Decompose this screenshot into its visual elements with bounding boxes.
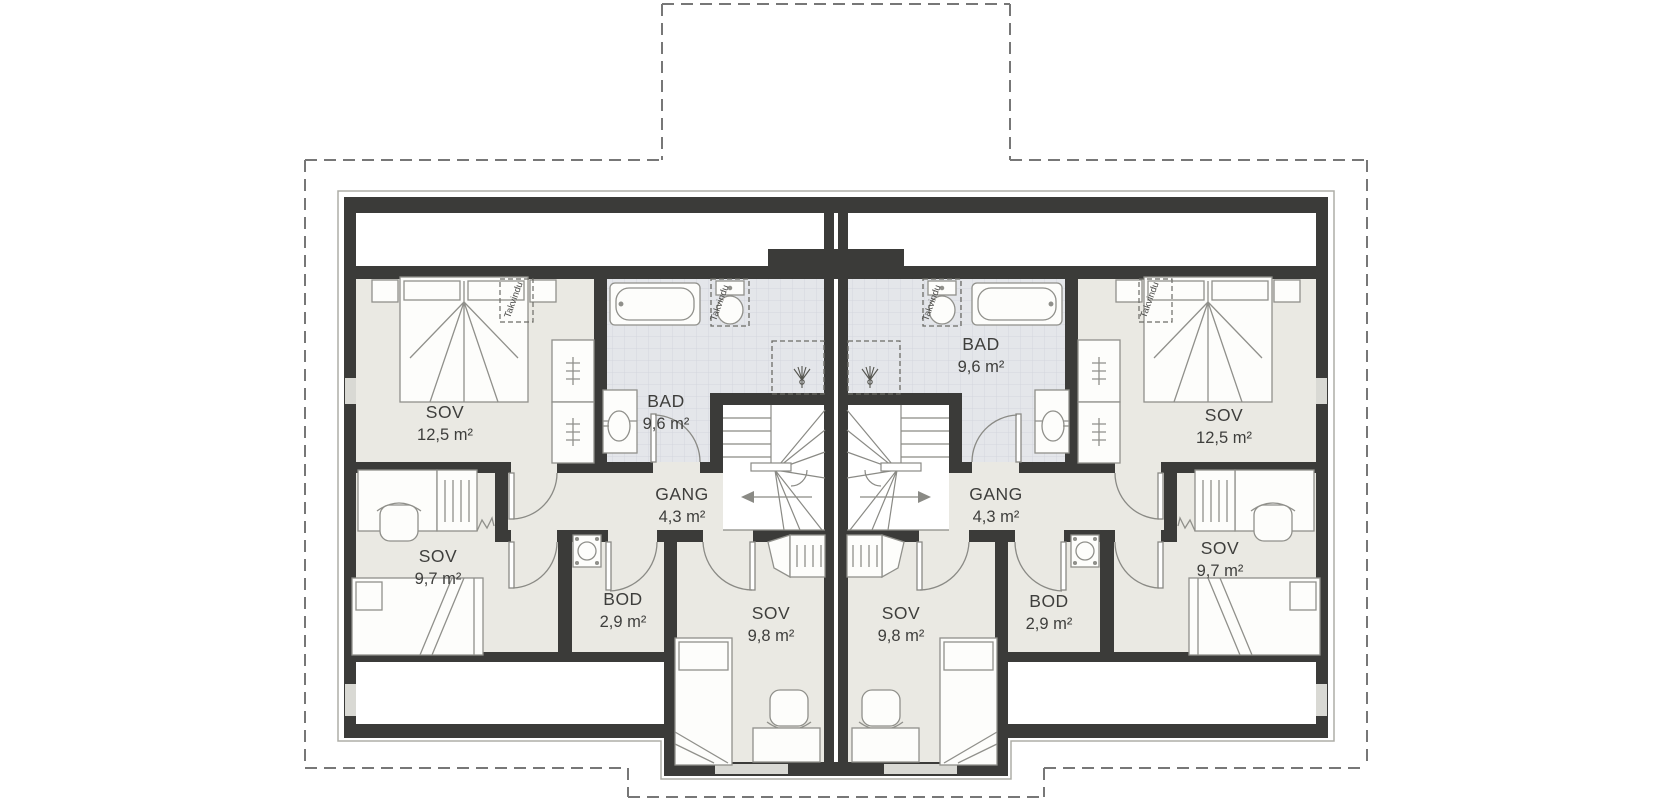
wardrobe-icon	[552, 340, 594, 463]
room-label-bod-right: BOD 2,9 m²	[1026, 591, 1073, 634]
room-label-gang-left: GANG 4,3 m²	[655, 484, 709, 527]
desk-chair-icon	[767, 690, 811, 730]
single-bed-icon	[352, 578, 483, 655]
desk-icon	[852, 728, 919, 762]
room-label-sov-125-right: SOV 12,5 m²	[1196, 405, 1252, 448]
room-label-bad-right: BAD 9,6 m²	[958, 334, 1005, 377]
room-label-gang-right: GANG 4,3 m²	[969, 484, 1023, 527]
double-bed-icon	[1116, 277, 1300, 402]
dresser-icon	[1178, 470, 1314, 531]
single-bed-icon	[675, 638, 732, 765]
desk-icon	[753, 728, 820, 762]
room-label-sov-125-left: SOV 12,5 m²	[417, 402, 473, 445]
sink-icon	[603, 390, 637, 453]
room-label-sov-97-left: SOV 9,7 m²	[415, 546, 462, 589]
double-bed-icon	[372, 277, 556, 402]
dresser-icon	[358, 470, 494, 531]
room-label-bod-left: BOD 2,9 m²	[600, 589, 647, 632]
sink-icon	[1035, 390, 1069, 453]
desk-chair-icon	[377, 503, 421, 541]
room-label-sov-98-left: SOV 9,8 m²	[748, 603, 795, 646]
ventilation-unit-icon	[1071, 535, 1099, 567]
single-bed-icon	[1189, 578, 1320, 655]
floor-plan: SOV 12,5 m² BAD 9,6 m² GANG 4,3 m² SOV 9…	[0, 0, 1670, 800]
floor-plan-drawing	[0, 0, 1670, 800]
room-label-sov-97-right: SOV 9,7 m²	[1197, 538, 1244, 581]
desk-chair-icon	[1251, 503, 1295, 541]
ventilation-unit-icon	[573, 535, 601, 567]
desk-chair-icon	[859, 690, 903, 730]
wardrobe-icon	[1078, 340, 1120, 463]
room-label-sov-98-right: SOV 9,8 m²	[878, 603, 925, 646]
single-bed-icon	[940, 638, 997, 765]
room-label-bad-left: BAD 9,6 m²	[643, 391, 690, 434]
